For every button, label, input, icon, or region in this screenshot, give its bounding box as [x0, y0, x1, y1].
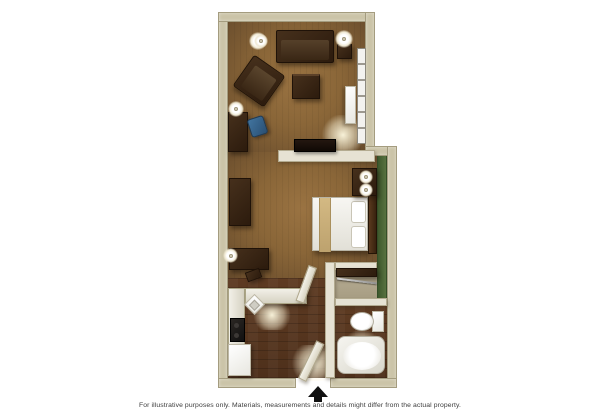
stove-burner	[234, 323, 239, 328]
pillow-top	[351, 201, 366, 223]
bed	[312, 197, 368, 251]
wall-bottom-left-segment	[218, 378, 296, 388]
table-lamp	[335, 30, 353, 48]
sofa-seat	[281, 40, 329, 60]
vanity-counter	[336, 268, 377, 277]
ac-unit	[345, 86, 356, 124]
wall-right	[387, 146, 397, 388]
wall-bath-vertical	[325, 262, 335, 378]
disclaimer-caption: For illustrative purposes only. Material…	[0, 402, 600, 409]
pillow-bottom	[351, 226, 366, 248]
wall-lamp-desk	[228, 101, 244, 117]
bed-runner	[319, 198, 331, 252]
bedroom-accent-wall	[377, 152, 387, 300]
stove	[230, 318, 245, 342]
wall-lamp-sofa	[254, 34, 268, 48]
stove-burner	[234, 333, 239, 338]
wall-lamp-console	[223, 248, 238, 263]
toilet-bowl	[350, 312, 374, 331]
desk	[228, 112, 248, 152]
bathtub-basin	[343, 342, 381, 370]
wall-closet-bathroom	[335, 298, 387, 306]
dresser	[229, 178, 251, 226]
window	[357, 48, 366, 144]
wall-left	[218, 12, 228, 388]
wall-bottom-right-segment	[330, 378, 397, 388]
sofa	[276, 30, 334, 63]
floorplan-page: { "caption": "For illustrative purposes …	[0, 0, 600, 420]
nightstand-lamp-2	[359, 183, 373, 197]
kitchen-sink-basin	[249, 300, 260, 311]
coffee-table	[292, 74, 320, 99]
refrigerator	[228, 344, 251, 376]
wall-top	[218, 12, 375, 22]
nightstand-lamp-1	[359, 170, 373, 184]
tv	[294, 139, 336, 152]
bathtub	[337, 336, 385, 374]
headboard	[368, 194, 377, 254]
wall-living-right	[365, 12, 375, 152]
